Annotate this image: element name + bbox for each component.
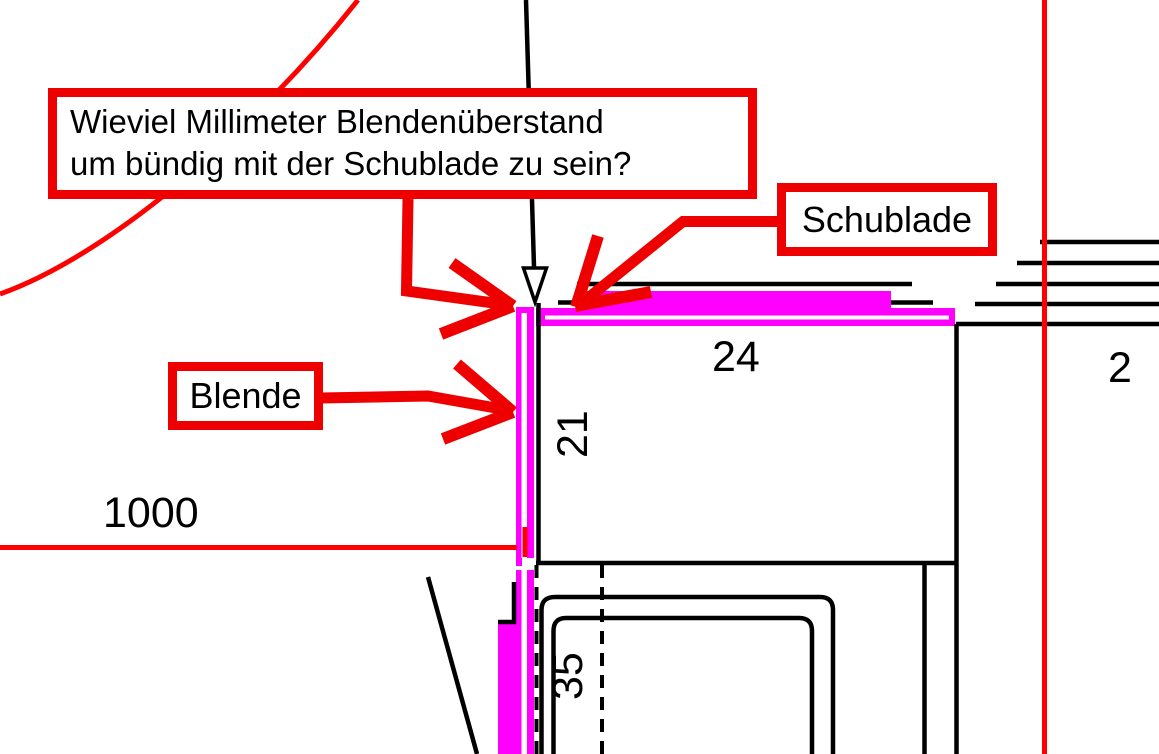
dimension-35: 35: [547, 652, 590, 700]
open-arrowhead: [524, 268, 547, 302]
step-line: [498, 582, 514, 622]
blende-strip-inner-white: [522, 313, 528, 558]
question-callout: Wieviel Millimeter Blendenüberstand um b…: [48, 88, 757, 199]
technical-drawing-canvas: Wieviel Millimeter Blendenüberstand um b…: [0, 0, 1159, 754]
dimension-21: 21: [552, 410, 595, 458]
schublade-callout: Schublade: [777, 183, 997, 256]
blende-label: Blende: [189, 375, 301, 417]
dimension-24: 24: [712, 336, 760, 379]
blende-callout: Blende: [168, 362, 323, 430]
dimension-2-right-edge: 2: [1108, 347, 1132, 390]
blende-arrow-barb-bottom: [443, 412, 513, 439]
question-arrow-barb-bottom: [441, 306, 513, 334]
dimension-1000: 1000: [103, 492, 199, 535]
blende-strip-lower-wide: [498, 620, 534, 754]
blende-strip-dash: [516, 558, 522, 566]
diagonal-line: [428, 577, 477, 754]
question-line-2: um bündig mit der Schublade zu sein?: [70, 143, 748, 185]
red-dimension-tick: [523, 527, 528, 557]
schublade-label: Schublade: [802, 199, 972, 241]
drawer-box-inner: [554, 618, 813, 754]
blende-strip-inner-white-2: [522, 570, 528, 754]
question-line-1: Wieviel Millimeter Blendenüberstand: [70, 101, 748, 143]
schublade-strip-inner-white: [545, 316, 949, 320]
blende-arrow-shaft: [321, 396, 510, 411]
